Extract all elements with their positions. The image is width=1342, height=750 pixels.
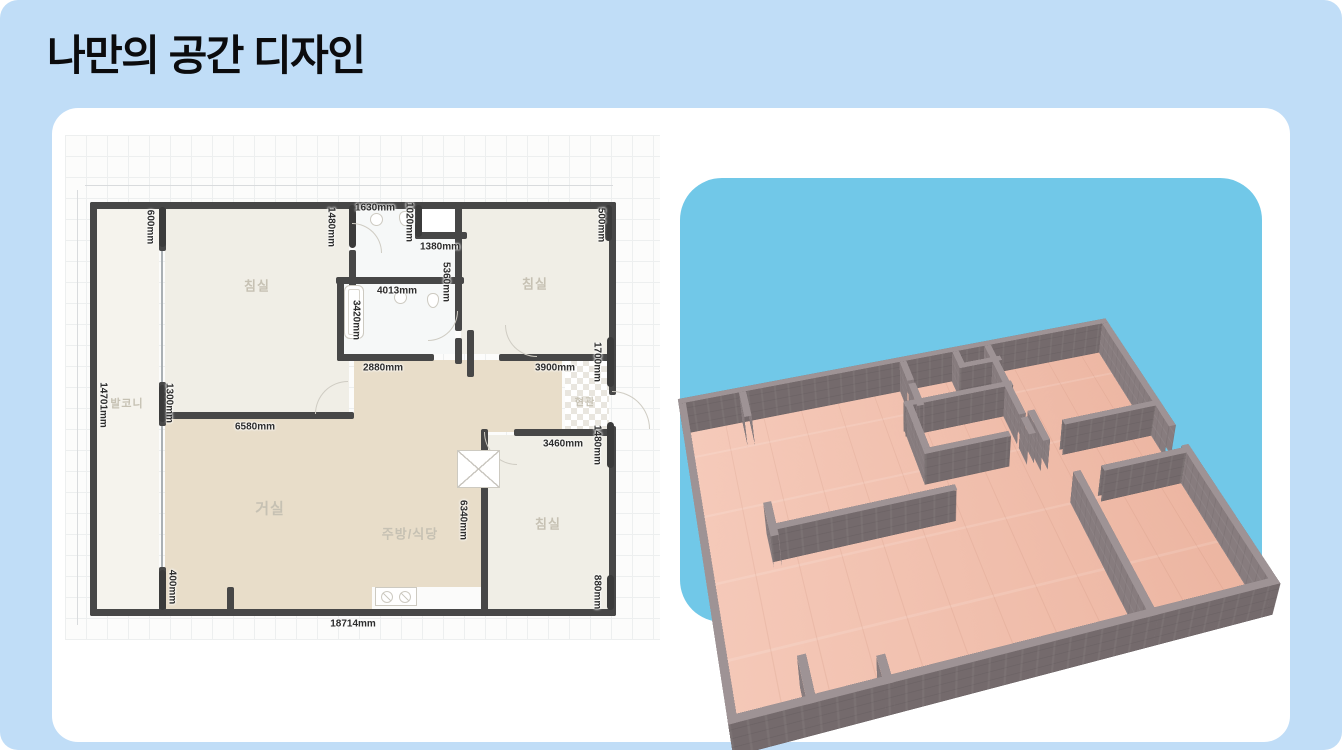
dim-label: 6580mm [235, 422, 275, 433]
window [161, 422, 163, 570]
fixture-xbox [457, 450, 500, 488]
wall [227, 587, 234, 616]
wall [337, 354, 434, 361]
dimension-bar [607, 575, 614, 610]
dim-label: 3460mm [543, 439, 583, 450]
dim-label: 1480mm [326, 207, 337, 247]
dim-label: 880mm [592, 575, 603, 609]
wall3d-top [678, 398, 738, 725]
dim-label: 5360mm [441, 262, 452, 302]
wall [467, 330, 474, 377]
room-floor-wood-living [165, 418, 484, 609]
dimension-bar [159, 207, 166, 247]
dim-label: 6340mm [458, 500, 469, 540]
slide-page: 나만의 공간 디자인 1630mm1380mm4013mm2880mm3900m… [0, 0, 1342, 750]
wall [90, 202, 97, 616]
dim-label: 1630mm [355, 203, 395, 214]
dim-label: 4013mm [377, 286, 417, 297]
wall [337, 277, 344, 361]
fixture-stove [375, 587, 417, 606]
dim-label: 500mm [596, 208, 607, 242]
floorplan-3d-scene [680, 178, 1262, 622]
room-label: 현관 [575, 394, 595, 409]
dim-label: 400mm [167, 570, 178, 604]
dimension-bar [159, 570, 166, 610]
dim-label: 1300mm [164, 383, 175, 423]
room-label: 발코니 [110, 395, 143, 411]
extent-line [77, 190, 78, 625]
door-arc [612, 391, 650, 429]
wall3d-face-front [770, 490, 957, 562]
room-label: 침실 [522, 274, 548, 293]
dim-label: 1020mm [404, 202, 415, 242]
dim-label: 1380mm [420, 242, 460, 253]
dim-label: 3420mm [351, 300, 362, 340]
dim-label: 18714mm [330, 619, 376, 630]
content-card: 1630mm1380mm4013mm2880mm3900mm6580mm3460… [52, 108, 1290, 742]
room-label: 거실 [255, 498, 285, 519]
dim-label: 3900mm [535, 363, 575, 374]
floorplan-2d: 1630mm1380mm4013mm2880mm3900mm6580mm3460… [65, 135, 660, 640]
wall3d-face-east [685, 398, 742, 750]
dim-label: 2880mm [363, 363, 403, 374]
dimension-bar [607, 337, 614, 387]
dim-label: 1480mm [592, 425, 603, 465]
floorplan-3d-floor [687, 350, 1267, 750]
dim-label: 1700mm [592, 342, 603, 382]
dim-label: 14701mm [98, 382, 109, 428]
room-label: 침실 [535, 514, 561, 533]
window [161, 247, 163, 385]
room-floor-bedroom-1 [165, 208, 349, 412]
fixture-sink [370, 213, 383, 226]
extent-line [85, 185, 613, 186]
dim-label: 600mm [145, 210, 156, 244]
wall3d-face-front [728, 583, 1280, 750]
wall [90, 609, 616, 616]
room-label: 주방/식당 [382, 524, 438, 543]
page-title: 나만의 공간 디자인 [47, 22, 364, 83]
wall3d-top [1181, 444, 1280, 586]
dimension-bar [415, 205, 422, 237]
wall [455, 338, 462, 364]
room-label: 침실 [244, 276, 270, 295]
floorplan-3d-panel [680, 178, 1262, 622]
